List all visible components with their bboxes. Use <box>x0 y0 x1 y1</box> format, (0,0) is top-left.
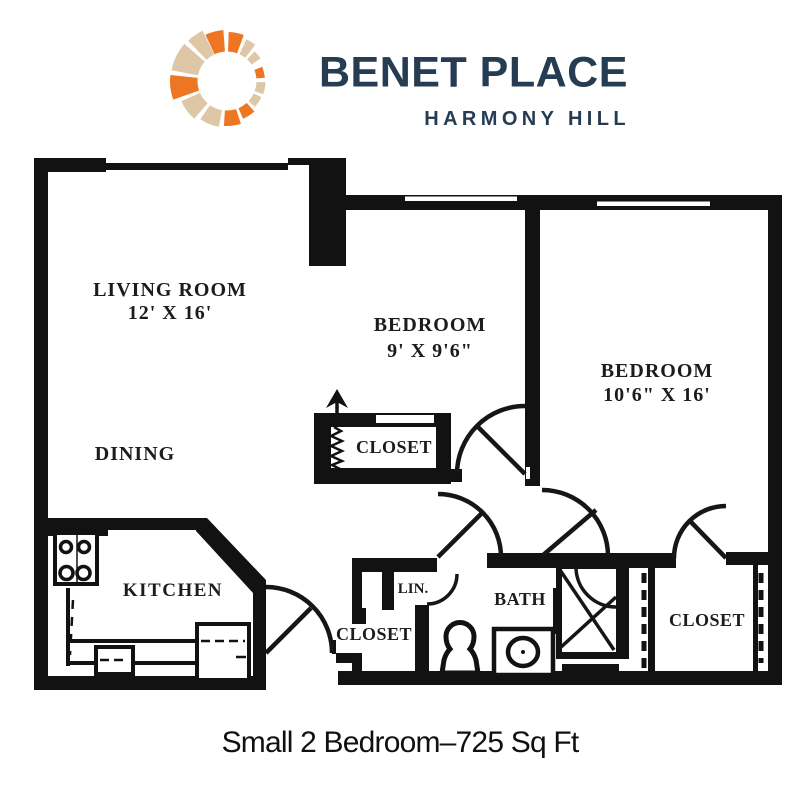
svg-text:KITCHEN: KITCHEN <box>123 580 223 601</box>
svg-text:12' X 16': 12' X 16' <box>128 302 213 324</box>
svg-text:LIVING ROOM: LIVING ROOM <box>93 279 247 301</box>
svg-text:BATH: BATH <box>494 589 546 609</box>
svg-text:Small 2 Bedroom–725 Sq Ft: Small 2 Bedroom–725 Sq Ft <box>222 726 580 759</box>
svg-text:CLOSET: CLOSET <box>356 437 432 457</box>
svg-text:BEDROOM: BEDROOM <box>601 360 714 382</box>
svg-text:LIN.: LIN. <box>398 581 429 597</box>
svg-text:HARMONY HILL: HARMONY HILL <box>424 108 630 130</box>
svg-text:BEDROOM: BEDROOM <box>374 314 487 336</box>
svg-text:CLOSET: CLOSET <box>669 610 745 630</box>
svg-text:DINING: DINING <box>95 443 175 465</box>
svg-text:BENET PLACE: BENET PLACE <box>319 49 628 97</box>
svg-text:9' X 9'6": 9' X 9'6" <box>387 340 473 362</box>
svg-text:10'6" X 16': 10'6" X 16' <box>603 384 711 406</box>
svg-text:CLOSET: CLOSET <box>336 624 412 644</box>
